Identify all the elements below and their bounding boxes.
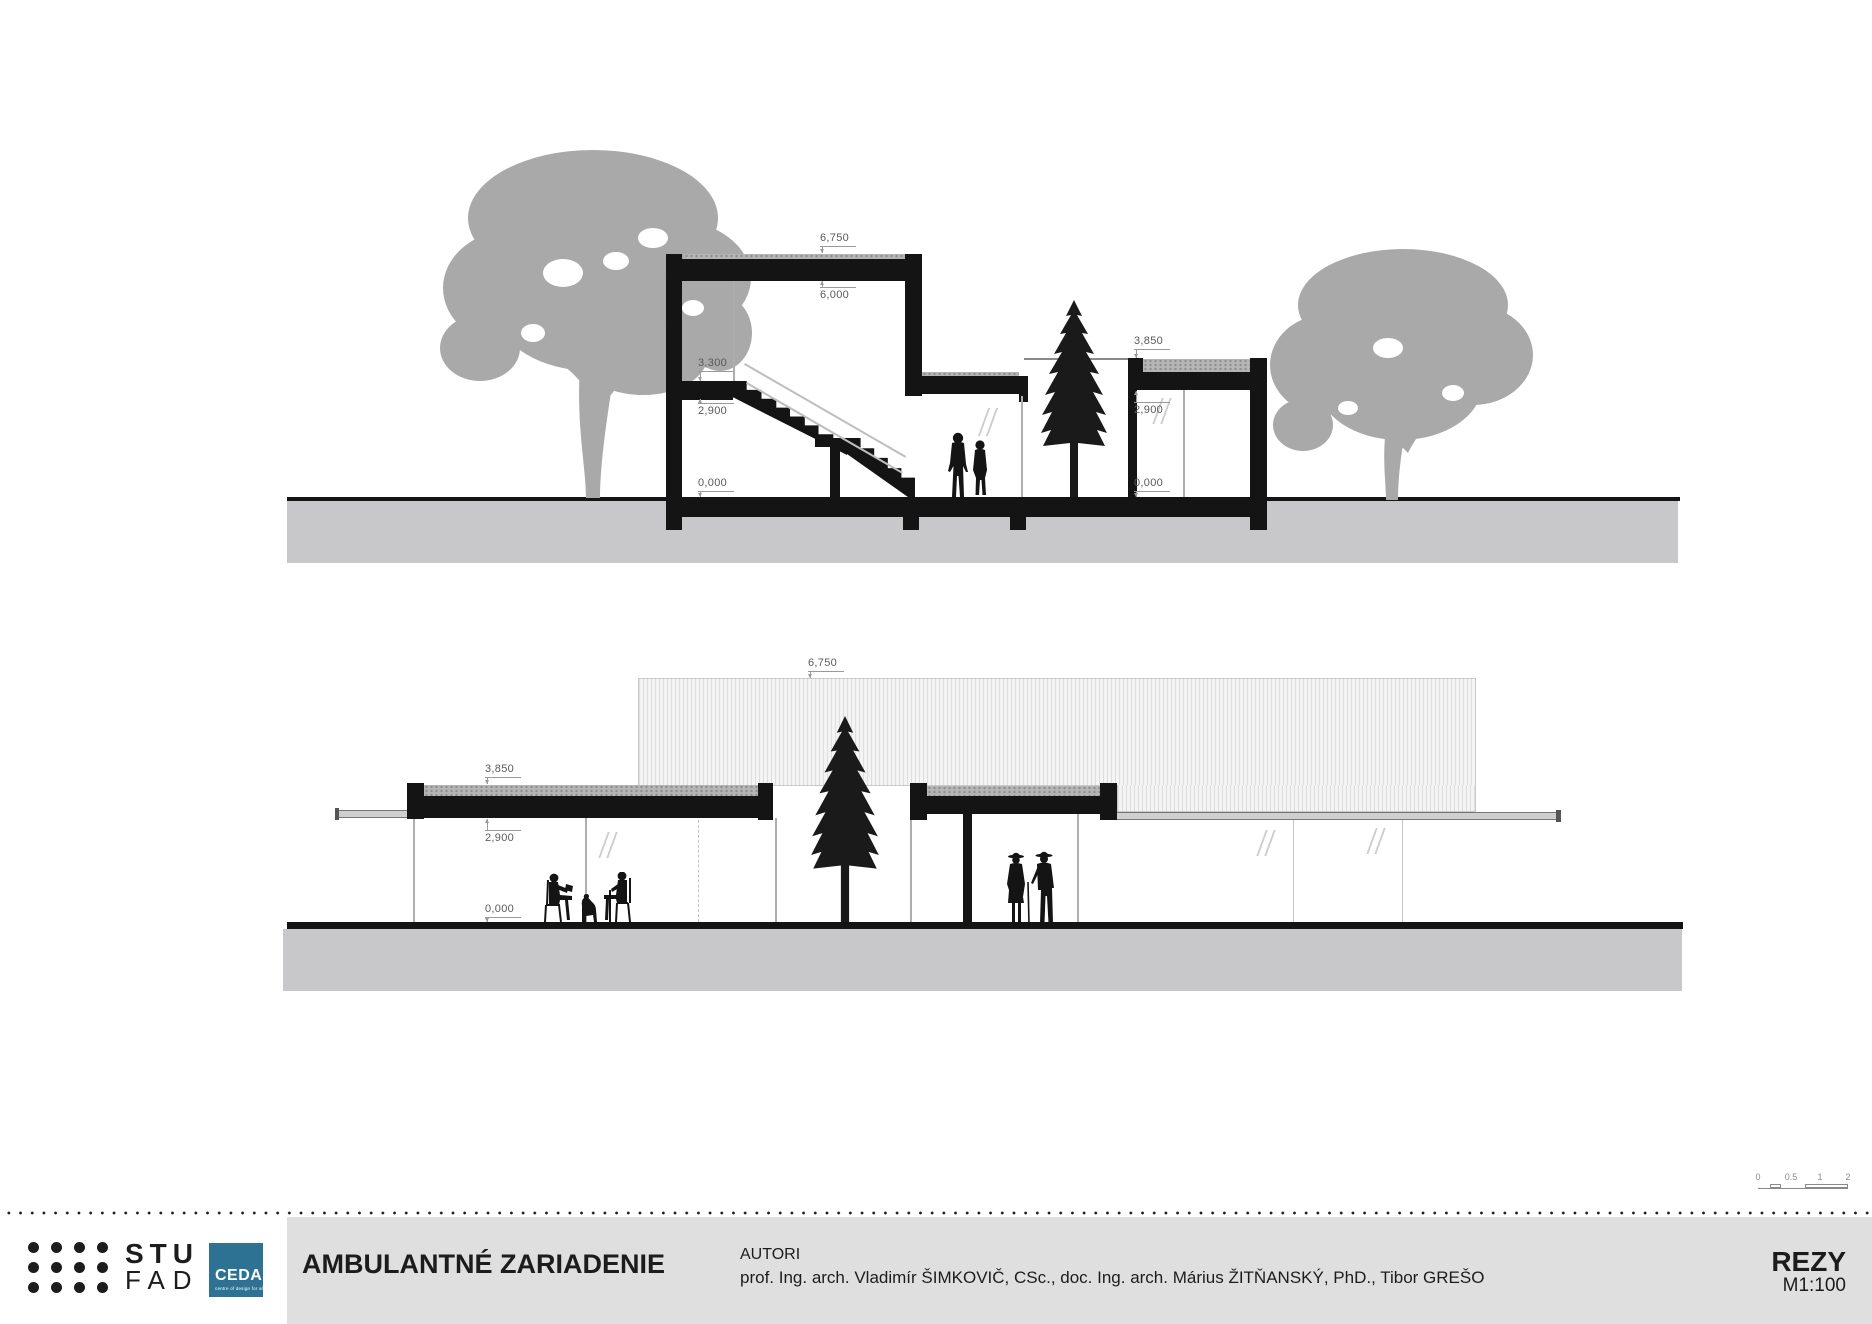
dimension-label: 0,000 [1134, 477, 1178, 492]
dimension-label: 3,850 [485, 763, 529, 778]
evergreen-tree-silhouette [1035, 300, 1113, 498]
glazing-line [1077, 814, 1079, 922]
dimension-label: 6,000 [820, 287, 864, 302]
ground-band [283, 929, 1682, 991]
authors-label: AUTORI [740, 1246, 800, 1264]
handrail-line [746, 382, 903, 474]
canopy-edge [1556, 810, 1561, 822]
parapet [910, 783, 927, 820]
door-dashed-line [698, 820, 699, 922]
floor-slab [666, 497, 1267, 517]
scale-bar-label: 0.5 [1785, 1172, 1798, 1182]
scale-bar-segment [1805, 1184, 1848, 1188]
scale-bar-label: 0 [1755, 1172, 1760, 1182]
scale-bar-label: 2 [1845, 1172, 1850, 1182]
glazing-line [413, 819, 415, 922]
roof-slab [1137, 372, 1250, 390]
dimension-label: 2,900 [698, 403, 742, 418]
parapet [1100, 783, 1117, 820]
glazing-line [910, 818, 912, 922]
roof-gravel [1143, 359, 1250, 372]
parapet [758, 783, 773, 820]
dimension-label: 3,850 [1134, 335, 1178, 350]
canopy-slab [335, 810, 407, 818]
fad-logo-text: FAD [125, 1265, 200, 1296]
stair-support-wall [830, 447, 840, 498]
roof-slab [424, 796, 773, 818]
foundation [903, 517, 919, 530]
person-silhouette [944, 432, 994, 500]
dimension-label: 6,750 [808, 657, 852, 672]
stu-logo-dots [28, 1242, 108, 1293]
roof-gravel [424, 785, 760, 796]
seated-people-silhouette [534, 872, 642, 924]
ceda-logo-text: CEDA [215, 1267, 262, 1285]
roof-slab [905, 376, 1028, 394]
person-silhouette [1002, 850, 1064, 926]
dimension-label: 0,000 [698, 477, 742, 492]
corrugated-wall-backdrop [638, 678, 1476, 786]
dimension-label: 0,000 [485, 903, 529, 918]
evergreen-tree-silhouette [805, 716, 885, 923]
parapet [407, 783, 424, 819]
wall-section [963, 813, 972, 923]
canopy-edge [335, 808, 339, 820]
scale-bar-line [1758, 1188, 1848, 1189]
window-line [1293, 820, 1294, 922]
glazing-line [1183, 390, 1185, 497]
tree-silhouette [1268, 243, 1536, 503]
dimension-label: 3,300 [698, 357, 742, 372]
scale-bar-label: 1 [1817, 1172, 1822, 1182]
glazing-line [1021, 396, 1023, 497]
glass-reflection [598, 832, 621, 858]
project-title: AMBULANTNÉ ZARIADENIE [302, 1249, 665, 1280]
corrugated-wall-backdrop [1117, 785, 1476, 812]
roof-slab [927, 796, 1117, 814]
authors-names: prof. Ing. arch. Vladimír ŠIMKOVIČ, CSc.… [740, 1268, 1484, 1288]
tree-silhouette [438, 133, 754, 501]
sheet-name: REZY [1771, 1246, 1846, 1278]
roof-slab [682, 259, 922, 281]
glazing-line [775, 818, 777, 922]
canopy-slab [1117, 812, 1560, 820]
ceda-logo: CEDA centre of design for all [209, 1243, 263, 1297]
foundation [1010, 517, 1026, 530]
dimension-label: 2,900 [1134, 402, 1178, 417]
window-line [1402, 820, 1403, 922]
roof-gravel [927, 786, 1100, 796]
glass-reflection [1256, 830, 1279, 856]
dimension-label: 2,900 [485, 830, 529, 845]
dotted-separator [0, 1209, 1872, 1215]
scale-bar-segment [1770, 1184, 1781, 1188]
glass-reflection [1366, 828, 1389, 854]
ceda-logo-subtext: centre of design for all [215, 1286, 264, 1291]
sheet-scale: M1:100 [1783, 1275, 1846, 1297]
dimension-label: 6,750 [820, 232, 864, 247]
drawing-sheet: 6,750 6,000 3,300 2,900 0,000 3,850 2,90… [0, 0, 1872, 1324]
wall-section [905, 254, 922, 396]
